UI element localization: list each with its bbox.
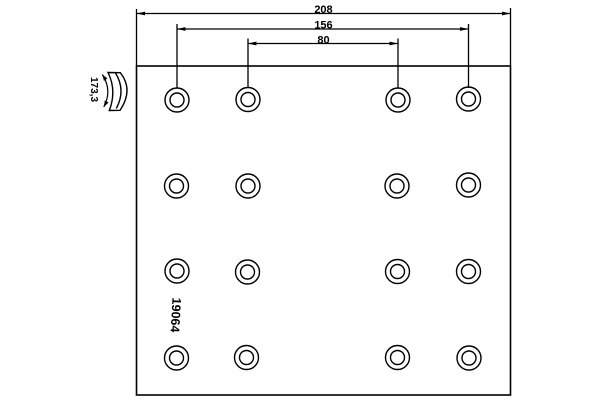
- svg-text:173,3: 173,3: [88, 77, 99, 102]
- svg-text:208: 208: [314, 4, 332, 16]
- svg-text:19064: 19064: [168, 297, 184, 332]
- svg-text:80: 80: [317, 34, 329, 46]
- svg-text:156: 156: [314, 20, 332, 32]
